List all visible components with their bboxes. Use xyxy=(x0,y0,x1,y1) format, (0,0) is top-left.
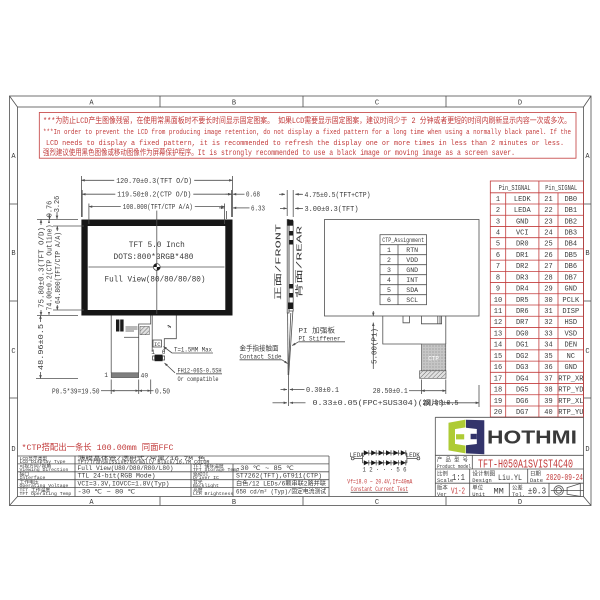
svg-text:NC: NC xyxy=(567,353,575,361)
svg-text:25: 25 xyxy=(544,241,552,249)
svg-text:LEDK: LEDK xyxy=(514,196,532,204)
svg-text:DEN: DEN xyxy=(564,342,577,350)
svg-text:28.00±0.5: 28.00±0.5 xyxy=(423,400,459,408)
svg-text:正面/FRONT: 正面/FRONT xyxy=(274,223,284,300)
svg-text:RTP_YU: RTP_YU xyxy=(558,409,583,417)
svg-text:5.00(P1): 5.00(P1) xyxy=(372,328,380,364)
svg-text:C: C xyxy=(375,100,379,108)
svg-text:DG7: DG7 xyxy=(516,409,529,417)
svg-text:5: 5 xyxy=(387,287,391,294)
svg-text:DB6: DB6 xyxy=(564,263,577,271)
svg-text:20: 20 xyxy=(494,409,502,417)
svg-text:LCM Brightness: LCM Brightness xyxy=(193,491,233,497)
svg-text:DB7: DB7 xyxy=(564,274,577,282)
svg-text:1: 1 xyxy=(496,196,500,204)
svg-text:ST7262(TFT),GT911(CTP): ST7262(TFT),GT911(CTP) xyxy=(236,473,322,480)
svg-text:C: C xyxy=(375,499,379,507)
svg-text:DG0: DG0 xyxy=(516,330,529,338)
svg-text:3: 3 xyxy=(387,267,391,274)
svg-text:IC: IC xyxy=(154,341,161,348)
svg-text:LEDK: LEDK xyxy=(406,452,421,459)
svg-text:22: 22 xyxy=(544,207,552,215)
svg-text:版本: 版本 xyxy=(437,484,448,492)
svg-text:6: 6 xyxy=(387,297,391,304)
svg-text:28: 28 xyxy=(544,274,552,282)
svg-text:Unit: Unit xyxy=(472,492,485,498)
svg-text:***In order to prevent the LCD: ***In order to prevent the LCD from prod… xyxy=(43,129,571,137)
svg-text:DB5: DB5 xyxy=(564,252,577,260)
svg-text:19: 19 xyxy=(494,398,502,406)
svg-text:5: 5 xyxy=(496,241,500,249)
svg-text:-30 ℃ ~ 80 ℃: -30 ℃ ~ 80 ℃ xyxy=(78,489,136,496)
svg-text:RTP_XR: RTP_XR xyxy=(558,375,584,383)
svg-text:37: 37 xyxy=(544,375,552,383)
svg-text:6: 6 xyxy=(162,349,166,356)
svg-text:B: B xyxy=(232,100,236,108)
svg-text:4.75±0.5(TFT+CTP): 4.75±0.5(TFT+CTP) xyxy=(305,192,371,200)
svg-text:6: 6 xyxy=(496,252,500,260)
svg-text:C: C xyxy=(585,348,589,356)
svg-text:DB3: DB3 xyxy=(564,230,577,238)
svg-text:日期: 日期 xyxy=(530,471,541,478)
svg-text:Pin_SIGNAL: Pin_SIGNAL xyxy=(545,185,577,193)
svg-text:VDD: VDD xyxy=(406,257,418,264)
svg-text:119.50±0.2(CTP O/D): 119.50±0.2(CTP O/D) xyxy=(117,191,191,199)
svg-text:Vf=18.0 ~ 20.4V,If=40mA: Vf=18.0 ~ 20.4V,If=40mA xyxy=(347,479,412,486)
svg-text:31: 31 xyxy=(544,308,552,316)
svg-text:TFT 5.0 Inch: TFT 5.0 Inch xyxy=(129,240,185,250)
svg-text:0.50: 0.50 xyxy=(155,388,170,396)
svg-text:MM: MM xyxy=(494,487,504,497)
svg-text:-30 ℃ ~ 85 ℃: -30 ℃ ~ 85 ℃ xyxy=(236,465,294,472)
svg-text:1: 1 xyxy=(387,247,391,254)
svg-text:C: C xyxy=(11,348,15,356)
svg-text:INT: INT xyxy=(406,277,418,284)
svg-text:DG6: DG6 xyxy=(516,398,529,406)
svg-text:2: 2 xyxy=(496,207,500,215)
svg-text:DB2: DB2 xyxy=(564,218,577,226)
svg-text:18: 18 xyxy=(494,387,502,395)
svg-text:2: 2 xyxy=(387,257,391,264)
svg-text:23: 23 xyxy=(544,218,552,226)
svg-text:DR4: DR4 xyxy=(516,286,529,294)
svg-text:650 cd/m² (Typ)/固定电流测试: 650 cd/m² (Typ)/固定电流测试 xyxy=(236,488,326,496)
svg-text:比例: 比例 xyxy=(437,470,448,478)
svg-text:DR2: DR2 xyxy=(516,263,529,271)
svg-text:30: 30 xyxy=(544,297,552,305)
svg-text:Pin_SIGNAL: Pin_SIGNAL xyxy=(499,185,531,193)
svg-text:4: 4 xyxy=(387,277,391,284)
svg-text:16: 16 xyxy=(494,364,502,372)
svg-text:34: 34 xyxy=(544,342,552,350)
svg-text:Design: Design xyxy=(472,478,491,484)
svg-text:CTP_Assignment: CTP_Assignment xyxy=(382,237,424,244)
svg-text:75.80±0.3(TFT O/D): 75.80±0.3(TFT O/D) xyxy=(39,227,47,308)
svg-text:D: D xyxy=(11,446,15,454)
svg-text:0.76: 0.76 xyxy=(47,201,55,218)
svg-text:Date: Date xyxy=(530,478,543,484)
svg-text:14: 14 xyxy=(494,342,502,350)
svg-text:12: 12 xyxy=(494,319,502,327)
svg-text:48.96±0.5: 48.96±0.5 xyxy=(38,324,46,370)
svg-text:1: 1 xyxy=(104,372,108,379)
svg-text:HOTHMI: HOTHMI xyxy=(487,427,577,448)
svg-text:27: 27 xyxy=(544,263,552,271)
svg-text:DB4: DB4 xyxy=(564,241,577,249)
svg-text:1:1: 1:1 xyxy=(452,473,465,483)
svg-text:GND: GND xyxy=(564,286,577,294)
svg-text:40: 40 xyxy=(141,373,149,380)
svg-text:D: D xyxy=(585,446,589,454)
svg-text:40: 40 xyxy=(544,409,552,417)
svg-text:TFT Operating Temp: TFT Operating Temp xyxy=(20,491,72,497)
svg-text:HSD: HSD xyxy=(564,319,577,327)
svg-text:DR5: DR5 xyxy=(516,297,529,305)
svg-text:DR1: DR1 xyxy=(516,252,529,260)
svg-text:Tol.: Tol. xyxy=(512,492,525,498)
svg-text:D: D xyxy=(518,100,522,108)
svg-text:DR6: DR6 xyxy=(516,308,529,316)
svg-text:0.68: 0.68 xyxy=(246,192,260,200)
svg-text:39: 39 xyxy=(544,398,552,406)
svg-text:Or compatible: Or compatible xyxy=(178,376,219,383)
svg-text:DG2: DG2 xyxy=(516,353,529,361)
svg-text:9: 9 xyxy=(496,286,500,294)
svg-text:Constant Current Test: Constant Current Test xyxy=(351,486,409,493)
svg-text:V1-2: V1-2 xyxy=(451,487,465,497)
svg-text:11: 11 xyxy=(494,308,502,316)
svg-text:20.50±0.1: 20.50±0.1 xyxy=(373,388,408,396)
svg-text:DR3: DR3 xyxy=(516,274,529,282)
svg-text:DG1: DG1 xyxy=(516,342,529,350)
svg-text:PI 加强板: PI 加强板 xyxy=(299,326,336,335)
svg-text:Full View(U80/D80/R80/L80): Full View(U80/D80/R80/L80) xyxy=(78,465,174,472)
svg-text:8: 8 xyxy=(496,274,500,282)
svg-text:DR0: DR0 xyxy=(516,241,529,249)
svg-text:Product model: Product model xyxy=(437,464,471,470)
svg-text:***为防止LCD产生图像残留，在使用常黑面板时不要长时间显: ***为防止LCD产生图像残留，在使用常黑面板时不要长时间显示固定图案。 如果L… xyxy=(43,115,571,126)
svg-text:7: 7 xyxy=(496,263,500,271)
svg-text:TFT-H050A1SVIST4C40: TFT-H050A1SVIST4C40 xyxy=(478,458,573,472)
svg-text:PCLK: PCLK xyxy=(562,297,580,305)
svg-text:3.26: 3.26 xyxy=(54,196,62,213)
svg-text:38: 38 xyxy=(544,387,552,395)
svg-text:26: 26 xyxy=(544,252,552,260)
svg-text:GND: GND xyxy=(516,218,529,226)
svg-text:B: B xyxy=(585,250,589,258)
svg-text:RTP_YD: RTP_YD xyxy=(558,387,583,395)
svg-text:单位: 单位 xyxy=(472,484,483,492)
svg-text:3.00±0.3(TFT): 3.00±0.3(TFT) xyxy=(305,206,359,214)
svg-text:金手指接触面: 金手指接触面 xyxy=(240,344,279,353)
svg-text:Full View(80/80/80/80): Full View(80/80/80/80) xyxy=(105,275,206,285)
svg-text:Liu.YL: Liu.YL xyxy=(498,473,522,483)
svg-text:DB0: DB0 xyxy=(564,196,577,204)
svg-text:24: 24 xyxy=(544,230,552,238)
svg-text:Scale: Scale xyxy=(437,478,453,484)
svg-text:B: B xyxy=(11,250,15,258)
svg-text:Ver: Ver xyxy=(437,492,447,498)
svg-text:FH12-06S-0.5SH: FH12-06S-0.5SH xyxy=(178,367,222,374)
svg-text:64.800(TFT/CTP A/A): 64.800(TFT/CTP A/A) xyxy=(55,232,63,304)
svg-text:白色/12 LEDs/6颗串联2路并联: 白色/12 LEDs/6颗串联2路并联 xyxy=(236,480,326,488)
svg-text:DISP: DISP xyxy=(562,308,579,316)
svg-text:74.00±0.2(CTP Outline): 74.00±0.2(CTP Outline) xyxy=(47,225,55,311)
svg-text:DB1: DB1 xyxy=(564,207,577,215)
svg-text:DG3: DG3 xyxy=(516,364,529,372)
svg-text:VCI: VCI xyxy=(516,230,529,238)
svg-text:设计制图: 设计制图 xyxy=(472,470,495,478)
svg-text:GND: GND xyxy=(564,364,577,372)
svg-text:±0.3: ±0.3 xyxy=(528,487,547,497)
svg-text:VCI=3.3V,IOVCC=1.8V(Typ): VCI=3.3V,IOVCC=1.8V(Typ) xyxy=(78,481,170,488)
svg-text:SDA: SDA xyxy=(406,287,418,294)
svg-text:*CTP搭配出一条长 100.00mm 同面FFC: *CTP搭配出一条长 100.00mm 同面FFC xyxy=(22,442,174,453)
svg-text:D: D xyxy=(518,499,522,507)
svg-text:4: 4 xyxy=(496,230,500,238)
svg-text:VSD: VSD xyxy=(564,330,577,338)
svg-text:DG5: DG5 xyxy=(516,387,529,395)
svg-text:RTN: RTN xyxy=(406,247,418,254)
svg-text:2020-09-24: 2020-09-24 xyxy=(546,473,583,483)
svg-text:1: 1 xyxy=(151,349,155,356)
svg-text:DOTS:800*3RGB*480: DOTS:800*3RGB*480 xyxy=(114,252,194,262)
svg-text:P0.5*39=19.50: P0.5*39=19.50 xyxy=(52,388,100,396)
svg-text:6.33: 6.33 xyxy=(251,205,265,213)
svg-text:LCD needs to display a fixed p: LCD needs to display a fixed pattern, it… xyxy=(46,140,564,148)
svg-text:公差: 公差 xyxy=(512,484,523,492)
svg-text:B: B xyxy=(232,499,236,507)
svg-text:TTL 24-bit(RGB Mode): TTL 24-bit(RGB Mode) xyxy=(78,473,156,480)
svg-text:15: 15 xyxy=(494,353,502,361)
svg-text:GND: GND xyxy=(406,267,418,274)
svg-text:PI Stiffener: PI Stiffener xyxy=(299,335,341,342)
svg-text:17: 17 xyxy=(494,375,502,383)
svg-text:108.000(TFT/CTP A/A): 108.000(TFT/CTP A/A) xyxy=(123,204,193,212)
svg-text:13: 13 xyxy=(494,330,502,338)
svg-text:1 2 · · · 5 6: 1 2 · · · 5 6 xyxy=(363,466,407,473)
svg-text:33: 33 xyxy=(544,330,552,338)
svg-text:SCL: SCL xyxy=(406,297,418,304)
svg-text:120.70±0.3(TFT O/D): 120.70±0.3(TFT O/D) xyxy=(116,178,192,186)
svg-text:32: 32 xyxy=(544,319,552,327)
svg-text:10: 10 xyxy=(494,297,502,305)
svg-text:RTP_XL: RTP_XL xyxy=(558,398,583,406)
svg-text:LEDA: LEDA xyxy=(514,207,532,215)
svg-text:0.30±0.1: 0.30±0.1 xyxy=(306,387,339,395)
svg-text:36: 36 xyxy=(544,364,552,372)
svg-text:DR7: DR7 xyxy=(516,319,529,327)
svg-text:DG4: DG4 xyxy=(516,375,529,383)
svg-text:3: 3 xyxy=(496,218,500,226)
svg-text:产 品 型 号: 产 品 型 号 xyxy=(437,456,469,464)
svg-text:Contact Side: Contact Side xyxy=(240,353,282,360)
svg-text:35: 35 xyxy=(544,353,552,361)
svg-text:29: 29 xyxy=(544,286,552,294)
svg-text:21: 21 xyxy=(544,196,552,204)
svg-text:CTP: CTP xyxy=(428,356,439,363)
svg-text:T=1.5MM Max: T=1.5MM Max xyxy=(174,347,212,354)
